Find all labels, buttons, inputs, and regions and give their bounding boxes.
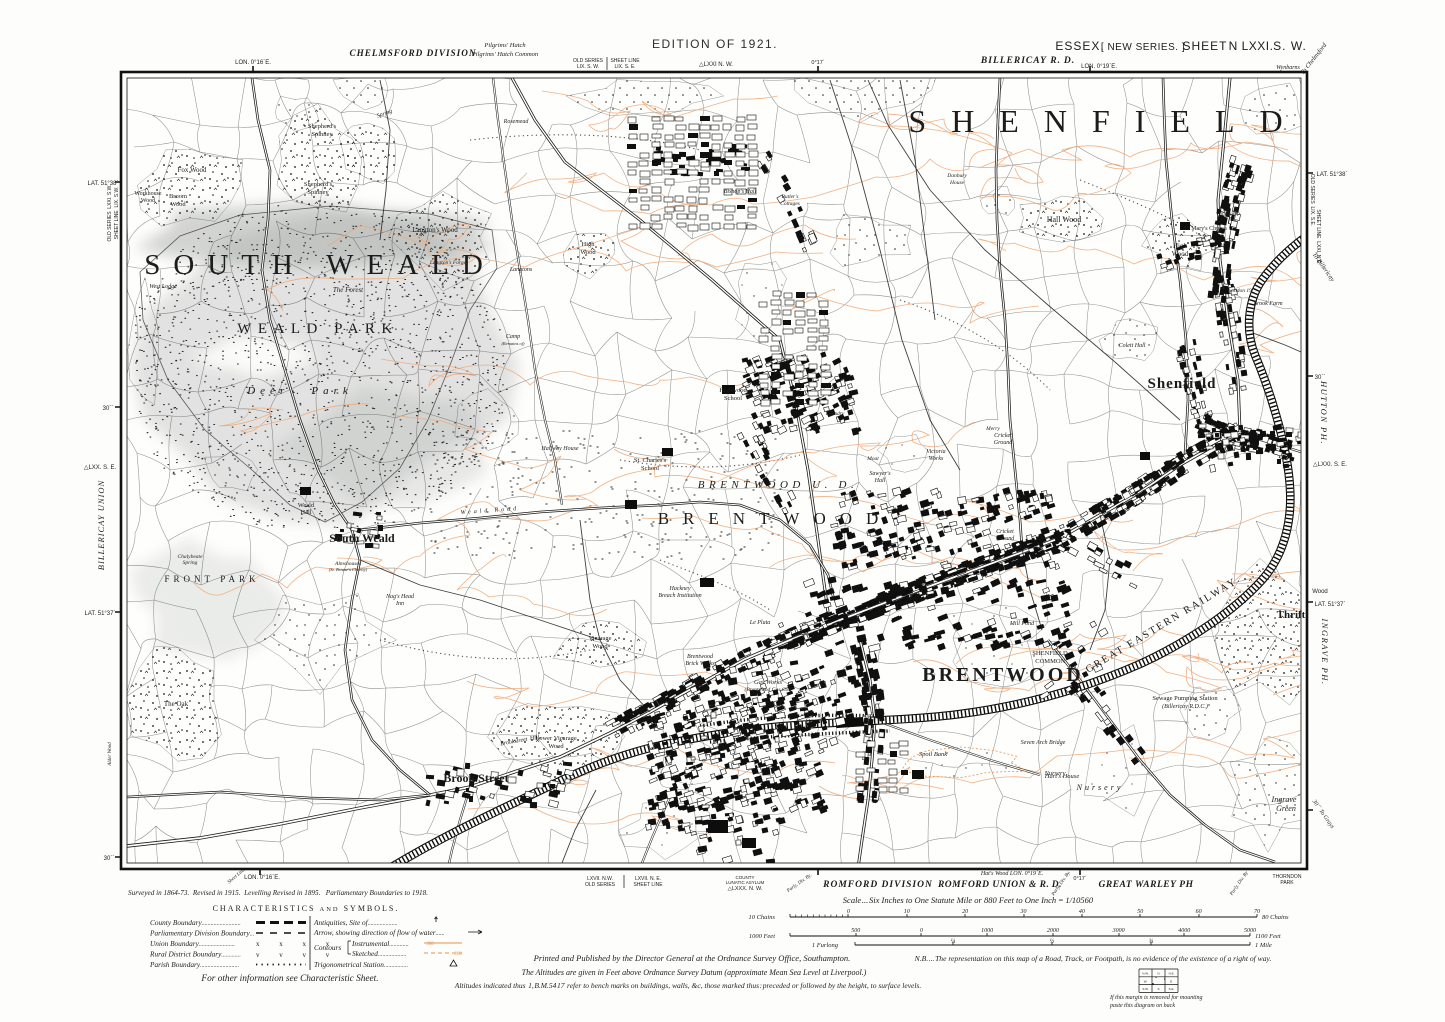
svg-text:Hart's House: Hart's House (1044, 773, 1080, 780)
svg-text:Rural District Boundary.......: Rural District Boundary............. (149, 950, 241, 959)
svg-text:N.E.: N.E. (1169, 972, 1175, 976)
svg-text:Brick Works: Brick Works (685, 661, 715, 667)
svg-text:Wood: Wood (141, 198, 155, 204)
svg-text:½: ½ (1050, 938, 1055, 945)
svg-text:0°17´: 0°17´ (1073, 876, 1086, 882)
svg-text:LIX. S. E.: LIX. S. E. (614, 64, 635, 70)
svg-text:Wood: Wood (1172, 250, 1189, 258)
svg-text:Instrumental.............: Instrumental............. (351, 939, 409, 948)
svg-text:Spring: Spring (183, 560, 198, 566)
svg-text:ESSEX.: ESSEX. (1055, 39, 1104, 53)
svg-text:Bishop's Hall: Bishop's Hall (724, 189, 757, 195)
svg-text:N.B. ... The representation on: N.B. ... The representation on this map … (914, 954, 1272, 963)
svg-text:Parly. Div. By.: Parly. Div. By. (786, 873, 813, 894)
svg-text:St. Charles's: St. Charles's (634, 457, 667, 464)
svg-text:Sketched...................: Sketched................... (352, 949, 406, 958)
svg-text:EDITION OF 1921.: EDITION OF 1921. (652, 37, 778, 51)
svg-text:School: School (724, 395, 742, 402)
svg-text:Butler's: Butler's (781, 194, 798, 200)
svg-text:Breach Institution: Breach Institution (658, 593, 701, 599)
svg-text:Langton's Forge: Langton's Forge (429, 260, 467, 266)
svg-text:0°17´: 0°17´ (811, 60, 824, 66)
svg-text:Ingrave: Ingrave (1271, 795, 1297, 804)
svg-text:Cottages: Cottages (780, 201, 800, 207)
svg-text:20: 20 (962, 909, 968, 915)
svg-text:Brook Street: Brook Street (443, 771, 508, 785)
svg-text:School: School (641, 465, 659, 472)
svg-text:1 Mile: 1 Mile (1255, 942, 1272, 949)
svg-text:△LXXI N. W.: △LXXI N. W. (699, 62, 733, 68)
svg-text:Hall: Hall (300, 509, 311, 516)
svg-text:Fox Wood: Fox Wood (177, 166, 207, 174)
svg-text:South Weald: South Weald (329, 531, 395, 545)
svg-text:N LXXI.: N LXXI. (1229, 39, 1274, 53)
svg-text:House: House (949, 180, 965, 186)
svg-text:Spoil Bank: Spoil Bank (919, 751, 947, 758)
svg-text:Wood: Wood (1312, 589, 1328, 595)
svg-text:LAT. 51°37´: LAT. 51°37´ (1315, 602, 1346, 608)
svg-text:Spinney: Spinney (311, 131, 333, 138)
svg-text:Surveyed in 1864-73. Revised: Surveyed in 1864-73. Revised in 1915. Le… (128, 889, 428, 897)
svg-text:OLD SERIES LIX. S.E.: OLD SERIES LIX. S.E. (1309, 174, 1315, 227)
svg-text:ROMFORD UNION & R. D.: ROMFORD UNION & R. D. (937, 880, 1062, 890)
svg-text:30´´: 30´´ (103, 406, 114, 412)
svg-text:4000: 4000 (1178, 927, 1190, 934)
svg-text:BILLERICAY UNION: BILLERICAY UNION (96, 479, 106, 570)
svg-text:LON. 0°16´E.: LON. 0°16´E. (235, 60, 271, 66)
svg-text:WEALD PARK: WEALD PARK (237, 321, 399, 337)
svg-text:30´´ To Grays: 30´´ To Grays (1310, 798, 1335, 830)
svg-text:Weald: Weald (298, 502, 315, 509)
svg-text:Langtons: Langtons (509, 267, 533, 273)
svg-text:COMMON: COMMON (1035, 658, 1066, 665)
svg-text:LON. 0°19´E.: LON. 0°19´E. (1081, 64, 1117, 70)
svg-text:Seven Arch Bridge: Seven Arch Bridge (1021, 740, 1066, 746)
svg-text:Antiquities, Site of..........: Antiquities, Site of.................... (313, 918, 398, 927)
svg-text:Shenfield: Shenfield (1147, 376, 1216, 392)
svg-text:CHELMSFORD DIVISION: CHELMSFORD DIVISION (350, 48, 477, 58)
svg-text:N.W.: N.W. (1142, 972, 1149, 976)
svg-text:Wynbarns: Wynbarns (1276, 65, 1300, 71)
svg-text:LON. 0°16´E.: LON. 0°16´E. (244, 875, 280, 881)
svg-text:Gas Works: Gas Works (754, 679, 783, 686)
svg-text:[ NEW SERIES. ]: [ NEW SERIES. ] (1101, 42, 1185, 53)
svg-text:LAT. 51°38´: LAT. 51°38´ (88, 181, 119, 187)
svg-text:S.E.: S.E. (1169, 987, 1175, 991)
svg-text:Lower Vicarage: Lower Vicarage (535, 735, 577, 742)
svg-text:CHARACTERISTICS AND SYMBOLS.: CHARACTERISTICS AND SYMBOLS. (213, 904, 400, 913)
svg-text:SHENFIELD: SHENFIELD (1032, 650, 1068, 657)
svg-text:SHENFIELD: SHENFIELD (908, 103, 1307, 139)
svg-text:2000: 2000 (1047, 928, 1059, 934)
svg-text:The Forest: The Forest (333, 286, 364, 294)
svg-text:Sta.: Sta. (806, 718, 814, 724)
svg-text:300: 300 (426, 942, 434, 947)
svg-text:70: 70 (1254, 909, 1260, 915)
svg-text:Shepherd's: Shepherd's (304, 181, 333, 188)
svg-text:(Remains of): (Remains of) (501, 341, 525, 346)
svg-text:Inn: Inn (395, 601, 404, 607)
svg-text:HUTTON PH.: HUTTON PH. (1319, 380, 1329, 445)
svg-text:(Billericay R.D.C.): (Billericay R.D.C.) (1162, 703, 1208, 710)
svg-text:Wood: Wood (580, 249, 596, 256)
svg-text:SHEET LINE LIX. S.W.: SHEET LINE LIX. S.W. (114, 187, 120, 240)
svg-text:Nursery: Nursery (1076, 783, 1124, 792)
svg-text:Pilgrims' Hatch: Pilgrims' Hatch (483, 42, 525, 49)
svg-text:LIX. S. W.: LIX. S. W. (577, 64, 599, 70)
svg-text:v v v v: v v v v (256, 951, 338, 959)
svg-text:△LXXX. N. W.: △LXXX. N. W. (728, 886, 763, 892)
svg-text:SHEET LINE: SHEET LINE (633, 882, 663, 888)
svg-text:If this margin is removed for: If this margin is removed for mounting (1109, 994, 1203, 1001)
svg-text:S.W.: S.W. (1142, 987, 1149, 991)
svg-text:Broom: Broom (169, 193, 187, 200)
svg-text:Parliamentary Division Boundar: Parliamentary Division Boundary... (149, 929, 254, 938)
svg-text:40: 40 (1079, 908, 1085, 915)
svg-text:London 19: London 19 (1227, 288, 1252, 294)
svg-text:Union Boundary................: Union Boundary........................ (150, 939, 235, 948)
svg-text:Printed and Published by the D: Printed and Published by the Director Ge… (533, 953, 851, 963)
svg-text:Parish Boundary...............: Parish Boundary.........................… (149, 960, 239, 969)
svg-text:Nag's Head: Nag's Head (385, 594, 415, 600)
svg-text:Hall Wood: Hall Wood (1047, 215, 1082, 224)
svg-text:(St. Brtune's Charity): (St. Brtune's Charity) (329, 567, 368, 572)
svg-text:Contours: Contours (314, 943, 341, 952)
svg-text:BRENTWOOD: BRENTWOOD (922, 664, 1083, 686)
svg-text:50: 50 (1137, 909, 1143, 915)
svg-text:Merry: Merry (985, 426, 1000, 432)
svg-text:Hall: Hall (874, 478, 886, 484)
svg-text:Windpump: Windpump (1216, 211, 1240, 217)
svg-text:Camp: Camp (506, 334, 520, 340)
svg-text:Rosemead: Rosemead (503, 119, 530, 125)
svg-text:Parly. Div. By: Parly. Div. By (1229, 870, 1250, 897)
svg-text:Sawyer's: Sawyer's (869, 471, 891, 477)
svg-text:S. W.: S. W. (1273, 39, 1307, 53)
svg-text:Halfway House: Halfway House (540, 445, 579, 452)
svg-text:BILLERICAY R. D.: BILLERICAY R. D. (980, 56, 1075, 66)
svg-text:Wood: Wood (170, 201, 186, 208)
svg-text:Altitudes indicated thus 1, B: Altitudes indicated thus 1, B.M.54 17 re… (454, 981, 922, 990)
svg-text:10 Chains: 10 Chains (748, 914, 775, 921)
svg-text:Colett Hall: Colett Hall (1119, 343, 1146, 349)
svg-text:Spinney: Spinney (307, 189, 329, 196)
svg-text:Shepherd's: Shepherd's (308, 123, 337, 130)
svg-text:West Lodge: West Lodge (149, 284, 177, 290)
svg-text:OLD SERIES: OLD SERIES (585, 882, 616, 888)
svg-text:LAT. 51°37´: LAT. 51°37´ (85, 611, 116, 617)
svg-text:Wood: Wood (548, 743, 564, 750)
svg-text:Workhouse: Workhouse (134, 191, 162, 197)
svg-text:The Altitudes are given in Fee: The Altitudes are given in Feet above Or… (522, 968, 867, 977)
svg-text:W.: W. (1144, 979, 1148, 983)
svg-text:1000 Feet: 1000 Feet (749, 933, 775, 940)
svg-text:△LXX. S. E.: △LXX. S. E. (84, 465, 117, 471)
svg-text:Langton's Wood: Langton's Wood (412, 226, 458, 234)
svg-text:BRENTWOOD U. D.: BRENTWOOD U. D. (698, 479, 858, 491)
svg-text:300: 300 (454, 952, 462, 957)
svg-text:St. Mary's Church: St. Mary's Church (1183, 226, 1227, 232)
svg-text:¾: ¾ (1149, 939, 1154, 945)
svg-text:Moat: Moat (866, 456, 879, 462)
svg-text:FRONT PARK: FRONT PARK (165, 574, 260, 584)
svg-text:0: 0 (847, 909, 850, 915)
svg-text:SHEET: SHEET (1182, 39, 1227, 53)
svg-text:Brook Farm: Brook Farm (1253, 301, 1283, 307)
svg-text:(Brentwood Gas Co.): (Brentwood Gas Co.) (744, 686, 791, 693)
svg-text:80 Chains: 80 Chains (1262, 914, 1289, 921)
svg-text:Vicarage: Vicarage (588, 635, 611, 642)
svg-text:Victoria: Victoria (926, 449, 945, 455)
svg-text:Highwood: Highwood (719, 387, 747, 394)
svg-text:Scale ... Six Inches to One St: Scale ... Six Inches to One Statute Mile… (843, 895, 1094, 905)
svg-text:High: High (1173, 242, 1188, 250)
svg-text:60: 60 (1196, 909, 1202, 915)
svg-text:1 Furlong: 1 Furlong (812, 942, 839, 949)
svg-text:OLD SERIES LXXI. S.W.: OLD SERIES LXXI. S.W. (107, 185, 113, 242)
svg-text:PARK: PARK (1280, 880, 1294, 886)
svg-text:Cricket: Cricket (996, 529, 1014, 535)
svg-text:30´´: 30´´ (104, 856, 115, 862)
svg-text:For other information see Char: For other information see Characteristic… (200, 973, 378, 984)
svg-text:N: N (1157, 972, 1159, 976)
svg-text:30: 30 (1020, 909, 1027, 915)
svg-text:E.: E. (1170, 979, 1173, 983)
svg-text:Thrift: Thrift (1277, 609, 1306, 621)
svg-text:Ground: Ground (994, 440, 1013, 446)
svg-text:Wood: Wood (592, 643, 608, 650)
svg-text:High: High (582, 241, 596, 248)
svg-text:10: 10 (904, 909, 910, 915)
svg-text:Le Plata: Le Plata (749, 620, 771, 626)
svg-text:Deer . Park: Deer . Park (246, 385, 353, 397)
svg-text:Sewage Pumping Station: Sewage Pumping Station (1152, 695, 1218, 702)
svg-text:LUNATIC ASYLUM: LUNATIC ASYLUM (726, 880, 765, 885)
svg-text:Alder Wood: Alder Wood (108, 742, 113, 767)
svg-text:500: 500 (851, 928, 860, 934)
svg-text:△LXXI. S. E.: △LXXI. S. E. (1313, 462, 1347, 468)
svg-text:Green: Green (1276, 804, 1296, 813)
svg-text:ROMFORD DIVISION: ROMFORD DIVISION (822, 880, 933, 890)
svg-text:Brentwood: Brentwood (687, 654, 714, 660)
svg-text:1100 Feet: 1100 Feet (1255, 933, 1281, 940)
svg-text:Danbury: Danbury (946, 173, 967, 179)
svg-text:Cricket: Cricket (994, 433, 1012, 439)
svg-text:Laundry: Laundry (825, 411, 845, 417)
svg-text:To Billericay: To Billericay (1311, 251, 1336, 283)
svg-text:Ground: Ground (996, 536, 1015, 542)
svg-text:BRENTWOOD: BRENTWOOD (658, 509, 893, 528)
svg-text:paste this diagram on back: paste this diagram on back (1109, 1003, 1175, 1009)
svg-text:0: 0 (920, 928, 923, 934)
svg-text:Pilgrims' Hatch Common: Pilgrims' Hatch Common (471, 51, 538, 58)
svg-text:GREAT WARLEY PH: GREAT WARLEY PH (1099, 880, 1194, 890)
svg-text:3000: 3000 (1112, 928, 1125, 934)
svg-text:LAT. 51°38´: LAT. 51°38´ (1317, 172, 1348, 178)
svg-text:Mill Pond: Mill Pond (1009, 621, 1035, 627)
svg-text:Trigonometrical Station.......: Trigonometrical Station................ (314, 960, 408, 969)
svg-text:Arrow, showing direction of fl: Arrow, showing direction of flow of wate… (313, 928, 445, 937)
svg-text:¼: ¼ (951, 939, 956, 945)
svg-text:Hackney: Hackney (669, 586, 691, 592)
svg-text:County Boundary...............: County Boundary.........................… (150, 918, 241, 927)
svg-text:Works: Works (929, 456, 944, 462)
svg-text:Hat's Wood LON. 0°19´E.: Hat's Wood LON. 0°19´E. (980, 870, 1043, 877)
svg-text:1000: 1000 (981, 928, 993, 934)
svg-text:S: S (1157, 987, 1159, 991)
svg-text:INGRAVE PH.: INGRAVE PH. (1320, 617, 1330, 685)
svg-text:The Oak: The Oak (164, 700, 189, 708)
